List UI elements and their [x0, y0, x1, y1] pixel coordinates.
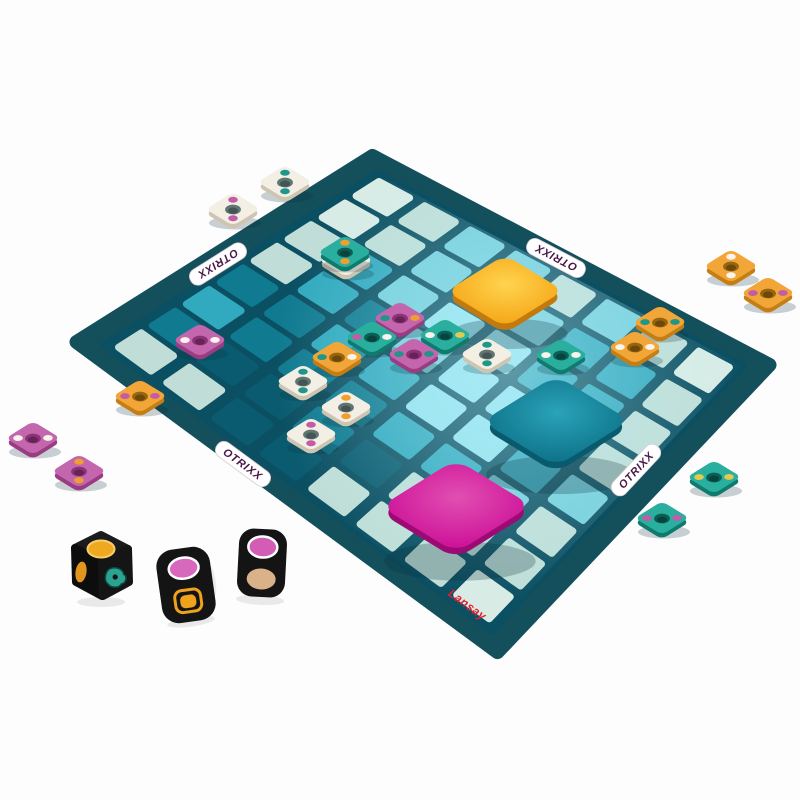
tile-teal: [683, 460, 745, 498]
otrixx-product-photo: OTRIXX OTRIXX OTRIXX OTRIXX Lansay: [0, 0, 800, 800]
scene: OTRIXX OTRIXX OTRIXX OTRIXX Lansay: [0, 0, 800, 800]
die-cube: [74, 535, 129, 607]
die-tilt: [154, 544, 221, 630]
tile-orange: [700, 249, 762, 287]
tile-white: [202, 192, 264, 230]
die-front: [236, 528, 288, 606]
tile-magenta: [48, 454, 110, 492]
tile-magenta: [2, 421, 64, 459]
die-face-orange-oval: [88, 541, 115, 558]
tile-white: [254, 165, 316, 203]
die-face-pink-oval: [248, 536, 278, 558]
